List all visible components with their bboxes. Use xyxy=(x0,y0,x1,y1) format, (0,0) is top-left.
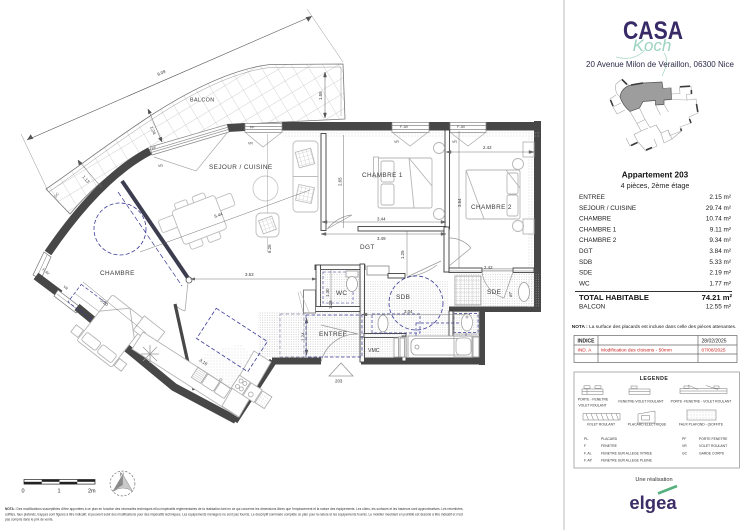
svg-text:74.21 m²: 74.21 m² xyxy=(702,293,733,302)
svg-text:PLACARD ELECTRIQUE: PLACARD ELECTRIQUE xyxy=(628,423,667,427)
svg-text:07/08/2025: 07/08/2025 xyxy=(702,348,726,354)
svg-text:0: 0 xyxy=(22,489,25,495)
svg-text:F. AP: F. AP xyxy=(584,459,593,463)
svg-text:CHAMBRE 2: CHAMBRE 2 xyxy=(471,204,512,211)
svg-text:SEJOUR / CUISINE: SEJOUR / CUISINE xyxy=(579,205,636,212)
svg-text:SDB: SDB xyxy=(579,259,592,266)
svg-text:1.28: 1.28 xyxy=(328,300,333,309)
svg-text:DGT: DGT xyxy=(360,244,375,251)
svg-text:CHAMBRE 2: CHAMBRE 2 xyxy=(579,237,617,244)
svg-text:29.74 m²: 29.74 m² xyxy=(706,205,731,212)
svg-text:Appartement 203: Appartement 203 xyxy=(622,171,689,180)
svg-text:3.84 m²: 3.84 m² xyxy=(709,248,731,255)
svg-text:F. AL: F. AL xyxy=(584,451,592,455)
svg-text:VOLET ROULANT: VOLET ROULANT xyxy=(587,423,615,427)
svg-text:20 Avenue Milon de Veraillon,: 20 Avenue Milon de Veraillon, 06300 Nice xyxy=(586,60,735,69)
svg-text:2.65: 2.65 xyxy=(338,177,343,186)
svg-text:LEGENDE: LEGENDE xyxy=(640,376,669,382)
svg-text:CHAMBRE 1: CHAMBRE 1 xyxy=(362,172,403,179)
svg-text:SDB: SDB xyxy=(396,294,410,301)
svg-text:F. AV: F. AV xyxy=(400,125,409,129)
svg-text:pas compris dans le prix de ve: pas compris dans le prix de vente. xyxy=(5,518,53,522)
svg-text:PF: PF xyxy=(250,126,255,130)
svg-text:GARDE CORPS: GARDE CORPS xyxy=(699,451,725,455)
svg-text:WC: WC xyxy=(336,290,347,297)
svg-text:TOTAL HABITABLE: TOTAL HABITABLE xyxy=(579,293,649,302)
svg-text:NOTA : La surface des placards: NOTA : La surface des placards est inclu… xyxy=(572,324,737,330)
svg-text:PF: PF xyxy=(682,437,686,441)
svg-text:PORTE -FENETRE - VOLET ROULANT: PORTE -FENETRE - VOLET ROULANT xyxy=(671,400,732,404)
svg-text:PL.: PL. xyxy=(584,437,589,441)
svg-text:VOLET ROULANT: VOLET ROULANT xyxy=(699,444,727,448)
svg-text:PORTE - FENETRE: PORTE - FENETRE xyxy=(578,398,609,402)
svg-text:5.33 m²: 5.33 m² xyxy=(709,259,731,266)
svg-text:ENTREE: ENTREE xyxy=(579,194,605,201)
svg-text:VR: VR xyxy=(158,164,163,168)
svg-text:CHAMBRE: CHAMBRE xyxy=(579,216,611,223)
svg-text:203: 203 xyxy=(335,379,343,384)
svg-text:IND. A: IND. A xyxy=(578,348,593,354)
svg-text:1.30: 1.30 xyxy=(325,288,330,297)
svg-text:1.55: 1.55 xyxy=(318,91,323,100)
svg-text:CHAMBRE 1: CHAMBRE 1 xyxy=(579,226,617,233)
svg-text:2.42: 2.42 xyxy=(484,265,493,270)
svg-text:elgea: elgea xyxy=(629,492,677,513)
svg-text:1.25: 1.25 xyxy=(400,250,405,259)
svg-text:FENETRE SUR ALLEGE VITREE: FENETRE SUR ALLEGE VITREE xyxy=(601,451,653,455)
svg-text:Koch: Koch xyxy=(633,36,672,55)
svg-text:ø7: ø7 xyxy=(508,291,513,297)
svg-text:2.42: 2.42 xyxy=(483,145,492,150)
svg-text:SDE: SDE xyxy=(487,289,501,296)
svg-text:Modification des cloisons - 50: Modification des cloisons - 50mm xyxy=(601,348,672,354)
svg-text:VOLET ROULANT: VOLET ROULANT xyxy=(578,404,606,408)
svg-text:28/02/2025: 28/02/2025 xyxy=(702,339,727,345)
svg-text:VR: VR xyxy=(452,140,457,144)
svg-text:VMC: VMC xyxy=(368,348,380,354)
svg-text:Une réalisation: Une réalisation xyxy=(635,477,672,483)
svg-text:VR: VR xyxy=(394,140,399,144)
svg-text:GC: GC xyxy=(682,451,688,455)
svg-text:VR: VR xyxy=(248,142,253,146)
svg-text:soffites, faux plafonds, trapp: soffites, faux plafonds, trappes sont fi… xyxy=(5,512,463,516)
svg-text:NOTA : Des modifications susce: NOTA : Des modifications susceptibles d'… xyxy=(5,507,463,511)
svg-text:BALCON: BALCON xyxy=(190,98,215,104)
svg-text:1: 1 xyxy=(58,489,61,495)
svg-text:PORTE FENETRE: PORTE FENETRE xyxy=(699,437,728,441)
svg-text:VR: VR xyxy=(62,285,69,291)
svg-text:1.77 m²: 1.77 m² xyxy=(709,280,731,287)
svg-text:BALCON: BALCON xyxy=(579,304,606,311)
svg-text:12.55 m²: 12.55 m² xyxy=(706,304,731,311)
svg-text:3.44: 3.44 xyxy=(377,217,386,222)
svg-text:2.19 m²: 2.19 m² xyxy=(709,270,731,277)
svg-text:FAUX PLAFOND - (SOFFITE: FAUX PLAFOND - (SOFFITE xyxy=(679,423,724,427)
svg-text:VR: VR xyxy=(682,444,687,448)
svg-text:SEJOUR / CUISINE: SEJOUR / CUISINE xyxy=(209,164,273,171)
svg-text:3.53: 3.53 xyxy=(245,272,254,277)
svg-text:CHAMBRE: CHAMBRE xyxy=(100,270,135,277)
svg-text:WC: WC xyxy=(579,280,590,287)
svg-text:9.09: 9.09 xyxy=(156,69,166,77)
svg-text:1.24: 1.24 xyxy=(301,332,306,341)
svg-text:3.64: 3.64 xyxy=(457,198,462,207)
svg-text:FENETRE SUR ALLEGE PLEINE: FENETRE SUR ALLEGE PLEINE xyxy=(601,459,653,463)
svg-text:SDE: SDE xyxy=(579,270,592,277)
svg-text:F. AV: F. AV xyxy=(457,125,466,129)
svg-text:DGT: DGT xyxy=(579,248,593,255)
svg-text:INDICE: INDICE xyxy=(578,339,596,345)
svg-text:2m: 2m xyxy=(88,489,96,495)
svg-text:FENETRE-VOLET ROULANT: FENETRE-VOLET ROULANT xyxy=(618,400,663,404)
svg-text:PLACARD: PLACARD xyxy=(601,437,618,441)
svg-text:4 pièces, 2ème étage: 4 pièces, 2ème étage xyxy=(621,181,690,190)
svg-text:9.11 m²: 9.11 m² xyxy=(710,226,731,233)
svg-text:9.34 m²: 9.34 m² xyxy=(709,237,731,244)
svg-text:10.74 m²: 10.74 m² xyxy=(706,216,731,223)
svg-text:F: F xyxy=(584,444,586,448)
svg-text:FENETRE: FENETRE xyxy=(601,444,618,448)
svg-text:6.26: 6.26 xyxy=(267,244,272,253)
svg-text:3.04: 3.04 xyxy=(404,309,413,314)
svg-text:2.15 m²: 2.15 m² xyxy=(709,194,731,201)
svg-text:3.49: 3.49 xyxy=(377,236,386,241)
